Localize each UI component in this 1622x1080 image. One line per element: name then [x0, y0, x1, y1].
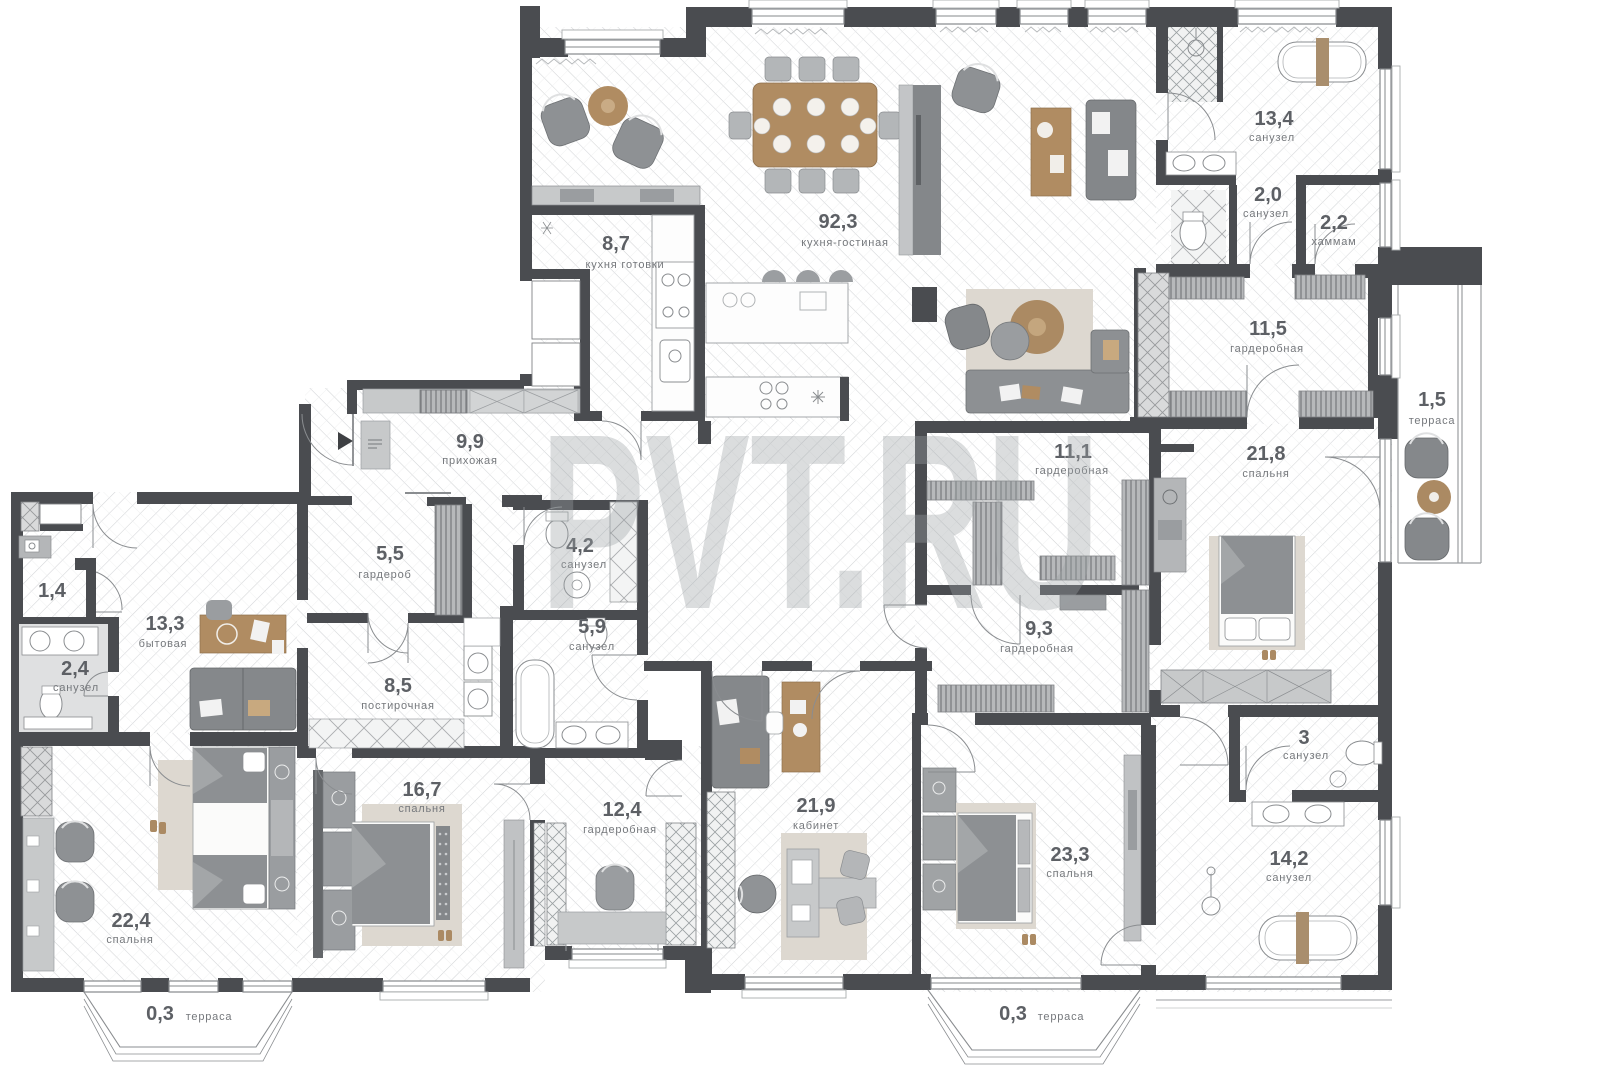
svg-text:1,4: 1,4	[38, 580, 67, 602]
svg-text:терраса: терраса	[186, 1011, 233, 1023]
svg-text:2,4: 2,4	[61, 658, 90, 680]
svg-text:0,3: 0,3	[146, 1003, 174, 1025]
svg-text:бытовая: бытовая	[139, 638, 188, 650]
svg-text:9,9: 9,9	[456, 431, 484, 453]
svg-text:кабинет: кабинет	[793, 820, 839, 832]
svg-text:2,0: 2,0	[1254, 184, 1282, 206]
svg-text:санузел: санузел	[53, 682, 99, 694]
svg-text:терраса: терраса	[1409, 415, 1456, 427]
svg-text:спальня: спальня	[1242, 468, 1289, 480]
svg-text:5,5: 5,5	[376, 543, 404, 565]
svg-text:22,4: 22,4	[112, 910, 152, 932]
svg-text:23,3: 23,3	[1051, 844, 1090, 866]
svg-text:гардеробная: гардеробная	[1230, 343, 1304, 355]
svg-text:PVT.RU: PVT.RU	[540, 382, 1100, 661]
svg-text:14,2: 14,2	[1270, 848, 1309, 870]
svg-text:1,5: 1,5	[1418, 389, 1446, 411]
svg-text:21,8: 21,8	[1247, 443, 1286, 465]
svg-text:санузел: санузел	[1243, 208, 1289, 220]
svg-text:спальня: спальня	[106, 934, 153, 946]
svg-text:хаммам: хаммам	[1311, 236, 1356, 248]
svg-text:16,7: 16,7	[403, 779, 442, 801]
svg-text:терраса: терраса	[1038, 1011, 1085, 1023]
svg-text:2,2: 2,2	[1320, 212, 1348, 234]
svg-text:92,3: 92,3	[819, 211, 858, 233]
svg-text:21,9: 21,9	[797, 795, 836, 817]
svg-text:3: 3	[1298, 727, 1309, 749]
svg-text:8,5: 8,5	[384, 675, 412, 697]
svg-text:прихожая: прихожая	[442, 455, 497, 467]
svg-text:кухня-гостиная: кухня-гостиная	[801, 237, 889, 249]
svg-text:гардеробная: гардеробная	[583, 824, 657, 836]
svg-text:13,3: 13,3	[146, 613, 185, 635]
svg-text:гардероб: гардероб	[358, 569, 411, 581]
svg-text:постирочная: постирочная	[361, 700, 434, 712]
svg-text:8,7: 8,7	[602, 233, 630, 255]
svg-text:санузел: санузел	[1283, 750, 1329, 762]
svg-text:12,4: 12,4	[603, 799, 643, 821]
svg-text:кухня готовки: кухня готовки	[586, 259, 665, 271]
svg-text:11,5: 11,5	[1249, 318, 1287, 340]
svg-text:спальня: спальня	[398, 803, 445, 815]
svg-text:13,4: 13,4	[1255, 108, 1295, 130]
svg-text:санузел: санузел	[1249, 132, 1295, 144]
svg-text:санузел: санузел	[1266, 872, 1312, 884]
svg-text:0,3: 0,3	[999, 1003, 1027, 1025]
svg-text:спальня: спальня	[1046, 868, 1093, 880]
